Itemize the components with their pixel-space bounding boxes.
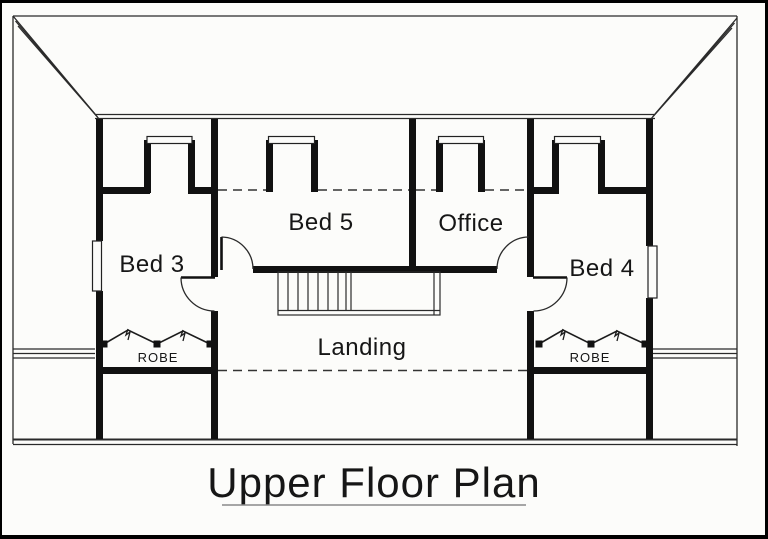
wall-bed4-dormer-left: [552, 140, 559, 194]
wall-exterior-left-upper: [96, 119, 103, 241]
window-bed4-dormer: [555, 137, 601, 144]
window-bed4-side: [648, 246, 657, 298]
floor-plan-page: Bed 3 Bed 5 Office Bed 4 Landing ROBE RO…: [0, 0, 768, 539]
wall-bed3-dormer-base-left: [96, 187, 150, 194]
wall-robe-left-rear: [96, 367, 218, 374]
robe-mount: [154, 341, 161, 348]
wall-bed3-landing-lower: [211, 311, 218, 439]
robe-mount: [536, 341, 543, 348]
wall-bed3-dormer-left: [144, 140, 151, 193]
room-label-robe-right: ROBE: [570, 350, 611, 365]
room-label-bed4: Bed 4: [569, 255, 634, 282]
wall-bed4-dormer-right: [598, 140, 605, 194]
room-label-robe-left: ROBE: [138, 350, 179, 365]
floor-plan-drawing: Bed 3 Bed 5 Office Bed 4 Landing ROBE RO…: [0, 0, 768, 539]
wall-bed3-landing-upper: [211, 119, 218, 277]
page-title: Upper Floor Plan: [207, 459, 540, 506]
window-office-dormer: [439, 137, 484, 144]
robe-mount: [101, 341, 108, 348]
wall-exterior-right-upper: [646, 119, 653, 246]
scan-border-top: [0, 0, 768, 3]
wall-office-dormer-left: [436, 140, 443, 192]
wall-bed3-dormer-right: [188, 140, 195, 193]
room-label-bed5: Bed 5: [288, 209, 353, 236]
wall-bed5-dormer-right: [311, 140, 318, 192]
robe-mount: [588, 341, 595, 348]
window-bed3-dormer: [147, 137, 192, 144]
scan-border-left: [0, 0, 2, 539]
wall-office-dormer-right: [478, 140, 485, 192]
window-bed3-side: [93, 241, 102, 291]
wall-bed3-dormer-base-right: [188, 187, 218, 194]
wall-bed4-dormer-base-left: [527, 187, 558, 194]
wall-bed4-dormer-base-right: [598, 187, 653, 194]
drawing-title: Upper Floor Plan: [207, 459, 540, 506]
wall-exterior-left-lower: [96, 291, 103, 439]
wall-bed5-office: [409, 119, 416, 273]
window-bed5-dormer: [269, 137, 315, 144]
wall-bed5-dormer-left: [266, 140, 273, 192]
room-label-landing: Landing: [318, 334, 407, 361]
wall-robe-right-rear: [527, 367, 653, 374]
scan-border-bottom: [0, 535, 768, 539]
robe-mount: [207, 341, 214, 348]
room-label-office: Office: [438, 210, 503, 237]
room-label-bed3: Bed 3: [119, 251, 184, 278]
robe-mount: [642, 341, 649, 348]
wall-office-bed4-lower: [527, 311, 534, 439]
